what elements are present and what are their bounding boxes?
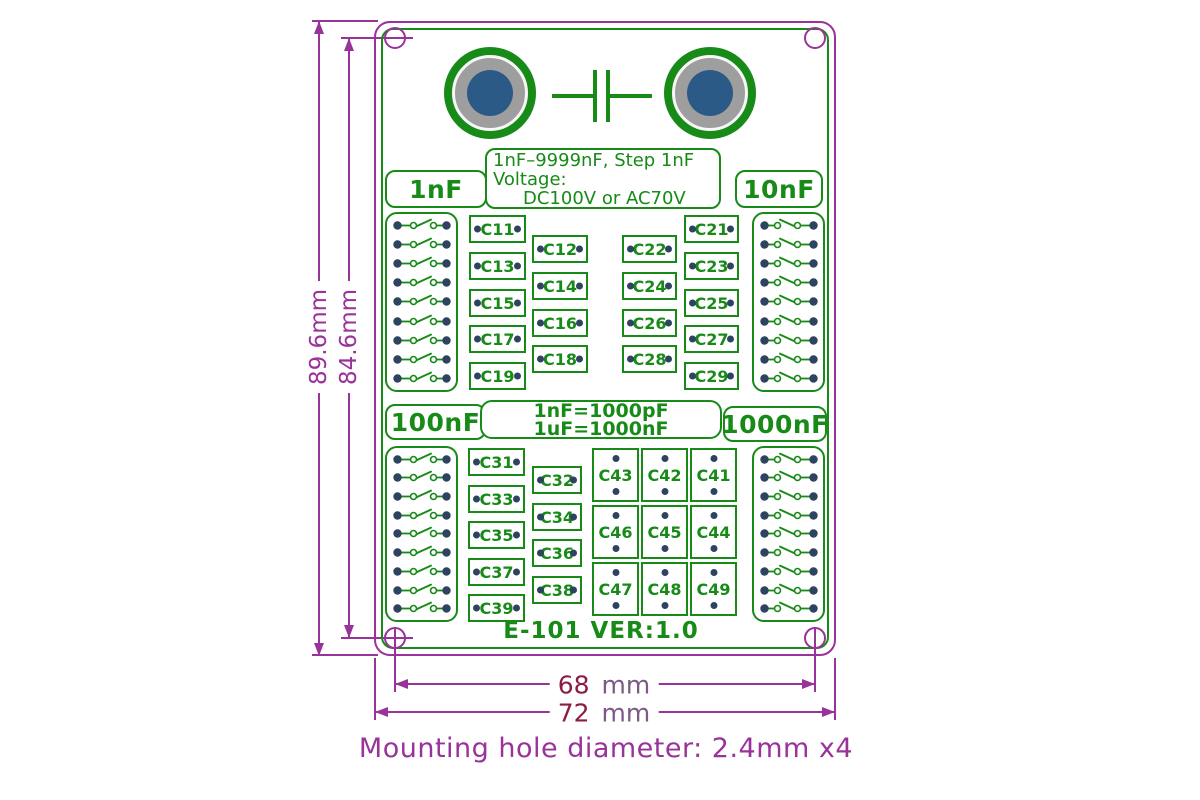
solder-pad-dot <box>612 545 619 552</box>
dip-switch <box>393 564 451 579</box>
solder-pad-dot <box>689 263 696 270</box>
dip-switch-bank-100nf <box>385 446 458 622</box>
solder-pad-dot <box>661 455 668 462</box>
capacitor-label: C31 <box>479 453 513 472</box>
section-label-100nf: 100nF <box>385 404 486 440</box>
capacitor-label: C33 <box>479 490 513 509</box>
capacitor-box: C34 <box>532 503 582 531</box>
dip-switch <box>760 452 818 467</box>
dip-switch <box>393 583 451 598</box>
capacitor-box: C39 <box>468 594 525 622</box>
mounting-hole-bottom-right <box>804 627 826 649</box>
mounting-hole-top-left <box>384 27 406 49</box>
capacitor-cell: C42 <box>641 448 688 502</box>
capacitor-box: C37 <box>468 558 525 586</box>
capacitor-lead <box>552 94 594 98</box>
capacitor-box: C38 <box>532 576 582 604</box>
solder-pad-dot <box>474 263 481 270</box>
section-label-10nf: 10nF <box>735 170 823 208</box>
capacitor-box: C24 <box>622 272 677 300</box>
dip-switch <box>393 526 451 541</box>
dip-switch <box>760 352 818 367</box>
capacitor-label: C14 <box>543 277 577 296</box>
dip-switch <box>393 508 451 523</box>
dip-switch <box>760 489 818 504</box>
solder-pad-dot <box>473 496 480 503</box>
terminal-ring <box>452 55 528 131</box>
conversion-line1: 1nF=1000pF <box>533 402 668 420</box>
capacitor-label: C37 <box>479 563 513 582</box>
solder-pad-dot <box>514 300 521 307</box>
solder-pad-dot <box>474 300 481 307</box>
extension-line <box>374 658 376 720</box>
solder-pad-dot <box>513 496 520 503</box>
capacitor-cell: C44 <box>690 505 737 559</box>
dip-switch <box>393 275 451 290</box>
solder-pad-dot <box>612 455 619 462</box>
dip-switch <box>393 333 451 348</box>
solder-pad-dot <box>513 605 520 612</box>
solder-pad-dot <box>661 488 668 495</box>
solder-pad-dot <box>473 569 480 576</box>
terminal-ring <box>672 55 748 131</box>
dip-switch-bank-10nf <box>752 212 825 392</box>
mounting-hole-top-right <box>804 27 826 49</box>
solder-pad-dot <box>710 545 717 552</box>
dip-switch <box>760 526 818 541</box>
dip-switch <box>760 294 818 309</box>
capacitor-box: C17 <box>469 325 526 353</box>
capacitor-label: C27 <box>694 330 728 349</box>
capacitor-box: C12 <box>532 235 588 263</box>
dim-label-board-height: 89.6mm <box>306 281 332 393</box>
section-label-1nf: 1nF <box>385 170 487 208</box>
solder-pad-dot <box>727 226 734 233</box>
solder-pad-dot <box>665 283 672 290</box>
solder-pad-dot <box>710 455 717 462</box>
solder-pad-dot <box>513 569 520 576</box>
capacitor-label: C29 <box>694 367 728 386</box>
solder-pad-dot <box>612 569 619 576</box>
dip-switch <box>760 371 818 386</box>
solder-pad-dot <box>514 373 521 380</box>
extension-line <box>312 20 378 22</box>
dim-unit: mm <box>602 699 651 728</box>
solder-pad-dot <box>665 246 672 253</box>
terminal-left <box>444 47 536 139</box>
capacitor-label: C19 <box>480 367 514 386</box>
dip-switch <box>393 237 451 252</box>
capacitor-box: C21 <box>684 215 739 243</box>
solder-pad-dot <box>665 356 672 363</box>
capacitor-label: C21 <box>694 220 728 239</box>
dip-switch <box>760 218 818 233</box>
solder-pad-dot <box>473 532 480 539</box>
solder-pad-dot <box>727 373 734 380</box>
solder-pad-dot <box>627 246 634 253</box>
dip-switch <box>760 275 818 290</box>
terminal-right <box>664 47 756 139</box>
mounting-note: Mounting hole diameter: 2.4mm x4 <box>336 733 876 764</box>
capacitor-cell: C47 <box>592 562 639 616</box>
mounting-hole-bottom-left <box>384 627 406 649</box>
capacitor-box: C33 <box>468 485 525 513</box>
capacitor-cell: C43 <box>592 448 639 502</box>
solder-pad-dot <box>537 550 544 557</box>
dip-switch-bank-1000nf <box>752 446 825 622</box>
capacitor-label: C49 <box>696 580 730 599</box>
capacitor-cell: C48 <box>641 562 688 616</box>
spec-range: 1nF–9999nF, Step 1nF <box>493 151 719 170</box>
spec-box: 1nF–9999nF, Step 1nF Voltage: DC100V or … <box>485 148 721 209</box>
capacitor-label: C11 <box>480 220 514 239</box>
capacitor-label: C18 <box>543 350 577 369</box>
solder-pad-dot <box>576 283 583 290</box>
solder-pad-dot <box>474 373 481 380</box>
solder-pad-dot <box>661 602 668 609</box>
solder-pad-dot <box>627 283 634 290</box>
capacitor-label: C26 <box>632 314 666 333</box>
capacitor-label: C38 <box>540 581 574 600</box>
dim-label-hole-spacing-h: 68mm <box>550 671 659 700</box>
pcb-dimension-diagram: 1nF–9999nF, Step 1nF Voltage: DC100V or … <box>0 0 1200 800</box>
dip-switch <box>760 470 818 485</box>
dip-switch <box>393 470 451 485</box>
solder-pad-dot <box>537 356 544 363</box>
solder-pad-dot <box>727 300 734 307</box>
capacitor-label: C43 <box>598 466 632 485</box>
dip-switch <box>760 508 818 523</box>
dip-switch <box>393 371 451 386</box>
capacitor-label: C41 <box>696 466 730 485</box>
section-label-1000nf: 1000nF <box>723 406 827 442</box>
solder-pad-dot <box>612 512 619 519</box>
solder-pad-dot <box>627 356 634 363</box>
arrowhead-up-icon <box>344 38 354 51</box>
solder-pad-dot <box>473 605 480 612</box>
dim-label-board-width: 72mm <box>550 699 659 728</box>
capacitor-box: C14 <box>532 272 588 300</box>
extension-line <box>312 654 378 656</box>
capacitor-plate <box>593 70 597 122</box>
capacitor-label: C35 <box>479 526 513 545</box>
capacitor-label: C28 <box>632 350 666 369</box>
capacitor-box: C23 <box>684 252 739 280</box>
solder-pad-dot <box>661 512 668 519</box>
dip-switch <box>760 333 818 348</box>
capacitor-cell: C46 <box>592 505 639 559</box>
dim-value: 68 <box>558 671 590 700</box>
capacitor-label: C47 <box>598 580 632 599</box>
dip-switch <box>760 583 818 598</box>
solder-pad-dot <box>612 488 619 495</box>
capacitor-label: C25 <box>694 294 728 313</box>
capacitor-box: C26 <box>622 309 677 337</box>
capacitor-label: C44 <box>696 523 730 542</box>
capacitor-box: C27 <box>684 325 739 353</box>
solder-pad-dot <box>710 512 717 519</box>
capacitor-box: C16 <box>532 309 588 337</box>
capacitor-label: C15 <box>480 294 514 313</box>
solder-pad-dot <box>570 477 577 484</box>
capacitor-cell: C49 <box>690 562 737 616</box>
capacitor-label: C24 <box>632 277 666 296</box>
solder-pad-dot <box>727 263 734 270</box>
capacitor-label: C22 <box>632 240 666 259</box>
solder-pad-dot <box>627 320 634 327</box>
dip-switch <box>760 564 818 579</box>
capacitor-box: C36 <box>532 539 582 567</box>
terminal-hole <box>467 70 513 116</box>
solder-pad-dot <box>537 514 544 521</box>
solder-pad-dot <box>513 459 520 466</box>
arrowhead-left-icon <box>375 707 388 717</box>
dip-switch <box>393 314 451 329</box>
capacitor-box: C18 <box>532 345 588 373</box>
capacitor-box: C32 <box>532 466 582 494</box>
solder-pad-dot <box>689 336 696 343</box>
capacitor-label: C39 <box>479 599 513 618</box>
dip-switch <box>393 218 451 233</box>
solder-pad-dot <box>513 532 520 539</box>
capacitor-label: C36 <box>540 544 574 563</box>
solder-pad-dot <box>710 569 717 576</box>
arrowhead-left-icon <box>395 679 408 689</box>
solder-pad-dot <box>665 320 672 327</box>
solder-pad-dot <box>570 514 577 521</box>
solder-pad-dot <box>661 545 668 552</box>
capacitor-box: C19 <box>469 362 526 390</box>
dim-label-hole-spacing-v: 84.6mm <box>336 281 362 393</box>
dip-switch <box>760 237 818 252</box>
solder-pad-dot <box>661 569 668 576</box>
dip-switch <box>393 452 451 467</box>
solder-pad-dot <box>576 246 583 253</box>
extension-line <box>834 658 836 720</box>
solder-pad-dot <box>570 587 577 594</box>
solder-pad-dot <box>537 477 544 484</box>
dim-unit: mm <box>602 671 651 700</box>
solder-pad-dot <box>537 320 544 327</box>
dip-switch <box>760 601 818 616</box>
spec-voltage-value: DC100V or AC70V <box>493 189 719 208</box>
capacitor-lead <box>609 94 652 98</box>
capacitor-label: C23 <box>694 257 728 276</box>
capacitor-label: C13 <box>480 257 514 276</box>
solder-pad-dot <box>710 488 717 495</box>
capacitor-label: C48 <box>647 580 681 599</box>
capacitor-box: C31 <box>468 448 525 476</box>
dip-switch-bank-1nf <box>385 212 458 392</box>
dip-switch <box>760 256 818 271</box>
capacitor-box: C35 <box>468 521 525 549</box>
solder-pad-dot <box>537 246 544 253</box>
dip-switch <box>393 489 451 504</box>
capacitor-box: C22 <box>622 235 677 263</box>
dip-switch <box>393 256 451 271</box>
capacitor-label: C16 <box>543 314 577 333</box>
capacitor-box: C29 <box>684 362 739 390</box>
solder-pad-dot <box>612 602 619 609</box>
capacitor-box: C25 <box>684 289 739 317</box>
solder-pad-dot <box>576 320 583 327</box>
capacitor-label: C34 <box>540 508 574 527</box>
capacitor-label: C17 <box>480 330 514 349</box>
terminal-hole <box>687 70 733 116</box>
dip-switch <box>393 601 451 616</box>
solder-pad-dot <box>537 283 544 290</box>
capacitor-box: C15 <box>469 289 526 317</box>
capacitor-cell: C41 <box>690 448 737 502</box>
dip-switch <box>393 545 451 560</box>
solder-pad-dot <box>474 336 481 343</box>
solder-pad-dot <box>474 226 481 233</box>
solder-pad-dot <box>727 336 734 343</box>
solder-pad-dot <box>514 226 521 233</box>
capacitor-box: C13 <box>469 252 526 280</box>
dim-value: 72 <box>558 699 590 728</box>
solder-pad-dot <box>537 587 544 594</box>
solder-pad-dot <box>514 336 521 343</box>
capacitor-label: C42 <box>647 466 681 485</box>
capacitor-box: C11 <box>469 215 526 243</box>
arrowhead-up-icon <box>314 21 324 34</box>
conversion-line2: 1uF=1000nF <box>533 420 668 438</box>
solder-pad-dot <box>710 602 717 609</box>
capacitor-label: C12 <box>543 240 577 259</box>
dip-switch <box>393 352 451 367</box>
capacitor-label: C46 <box>598 523 632 542</box>
dip-switch <box>760 545 818 560</box>
solder-pad-dot <box>514 263 521 270</box>
solder-pad-dot <box>689 300 696 307</box>
solder-pad-dot <box>689 226 696 233</box>
capacitor-label: C32 <box>540 471 574 490</box>
solder-pad-dot <box>689 373 696 380</box>
solder-pad-dot <box>473 459 480 466</box>
capacitor-cell: C45 <box>641 505 688 559</box>
spec-voltage-label: Voltage: <box>493 170 719 189</box>
solder-pad-dot <box>570 550 577 557</box>
capacitor-box: C28 <box>622 345 677 373</box>
dip-switch <box>760 314 818 329</box>
solder-pad-dot <box>576 356 583 363</box>
dip-switch <box>393 294 451 309</box>
conversion-box: 1nF=1000pF 1uF=1000nF <box>480 400 722 439</box>
capacitor-label: C45 <box>647 523 681 542</box>
